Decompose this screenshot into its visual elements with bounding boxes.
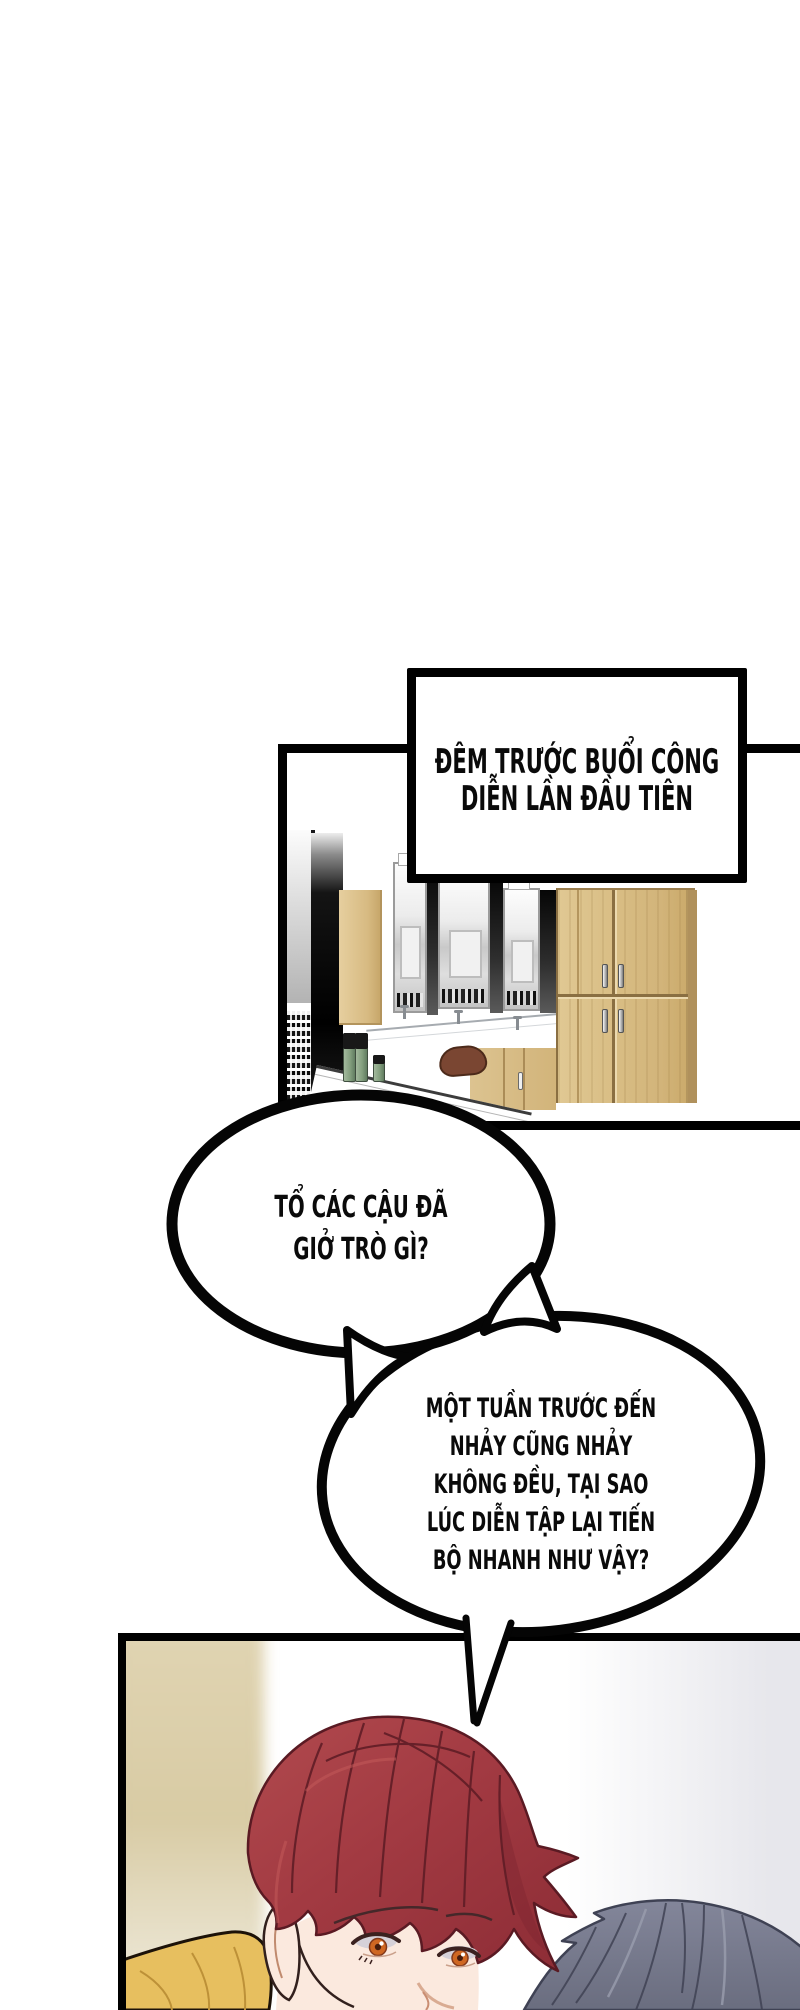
cosmetic-bottle	[355, 1033, 368, 1082]
bubble2-line: NHẢY CŨNG NHẢY	[396, 1428, 686, 1466]
mirror-frame-bar	[427, 865, 438, 1015]
cabinet-handle	[602, 1009, 608, 1033]
cosmetic-bottle	[373, 1055, 385, 1082]
cabinet-divider	[558, 994, 688, 997]
mirror-bulbs	[442, 989, 486, 1003]
bubble2-line: MỘT TUẦN TRƯỚC ĐẾN	[396, 1390, 686, 1428]
vanity-mirror-2	[438, 873, 490, 1009]
drawer-handle	[518, 1072, 523, 1090]
caption-line: ĐÊM TRƯỚC BUỔI CÔNG	[428, 744, 726, 781]
comic-page: ĐÊM TRƯỚC BUỔI CÔNG DIỄN LẦN ĐẦU TIÊN TỔ…	[0, 0, 800, 2010]
vanity-mirror-3	[503, 888, 540, 1011]
mirror-frame-bar	[540, 890, 556, 1013]
faucet	[403, 1005, 406, 1019]
cabinet-side-shadow	[688, 890, 697, 1103]
bubble1-text: TỔ CÁC CẬU ĐÃ GIỞ TRÒ GÌ?	[255, 1187, 466, 1271]
eye-highlight	[461, 1953, 465, 1957]
mirror-reflection	[511, 940, 534, 983]
mirror-reflection	[400, 926, 421, 979]
bubble2-line: BỘ NHANH NHƯ VẬY?	[396, 1542, 686, 1580]
eye-highlight	[379, 1941, 383, 1945]
panel-characters	[118, 1633, 800, 2010]
faucet	[457, 1010, 460, 1024]
yellow-shirt	[126, 1932, 271, 2010]
wardrobe-cabinet	[556, 888, 695, 1103]
chair	[438, 1044, 488, 1078]
mirror-bulbs	[507, 991, 536, 1005]
mirror-frame-bar	[490, 877, 503, 1013]
vanity-mirror-1	[393, 862, 427, 1013]
faucet	[516, 1016, 519, 1030]
wood-wall-panel	[339, 890, 382, 1025]
bubble2-line: KHÔNG ĐỀU, TẠI SAO	[396, 1466, 686, 1504]
mirror-reflection	[449, 930, 483, 978]
bubble1-line: TỔ CÁC CẬU ĐÃ	[255, 1187, 466, 1229]
cabinet-handle	[618, 1009, 624, 1033]
shelf-clutter	[287, 1011, 313, 1107]
cabinet-handle	[602, 964, 608, 988]
caption-line: DIỄN LẦN ĐẦU TIÊN	[428, 781, 726, 818]
cabinet-handle	[618, 964, 624, 988]
bubble-connector-spike	[484, 1266, 557, 1332]
bubble2-line: LÚC DIỄN TẬP LẠI TIẾN	[396, 1504, 686, 1542]
bubble2-text: MỘT TUẦN TRƯỚC ĐẾN NHẢY CŨNG NHẢY KHÔNG …	[396, 1390, 686, 1580]
characters-illustration	[126, 1641, 800, 2010]
bubble1-line: GIỞ TRÒ GÌ?	[255, 1229, 466, 1271]
caption-text: ĐÊM TRƯỚC BUỔI CÔNG DIỄN LẦN ĐẦU TIÊN	[428, 744, 726, 818]
